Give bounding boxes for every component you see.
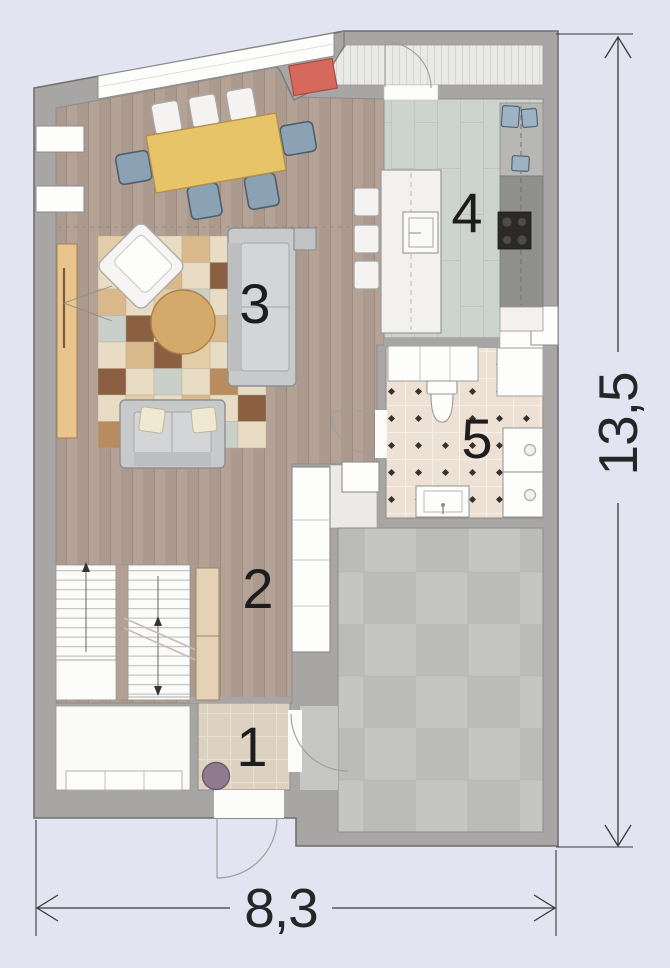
small-appliance — [512, 156, 530, 172]
hall-cabinet — [342, 462, 379, 492]
small-appliance — [521, 108, 538, 127]
dining-chair-blue — [279, 121, 317, 156]
cooktop — [498, 212, 531, 249]
garage-door-zone — [300, 706, 338, 790]
rug-patch — [126, 342, 154, 369]
loveseat — [120, 400, 225, 468]
rug-patch — [182, 369, 210, 396]
rug-patch — [98, 342, 126, 369]
left-window-2 — [36, 186, 84, 212]
sideboard — [57, 244, 77, 438]
rug-patch — [126, 369, 154, 396]
rug-patch — [98, 316, 126, 343]
pouf — [203, 763, 230, 790]
room-label-bathroom: 5 — [461, 407, 492, 470]
garage-door-opening — [288, 710, 302, 772]
dining-chair-blue — [244, 172, 280, 210]
bench — [66, 771, 182, 790]
stair-stringer — [116, 565, 128, 700]
rug-patch — [98, 369, 126, 396]
coffee-table — [151, 290, 215, 354]
dimension-height-label: 13,5 — [587, 372, 649, 475]
terrace-door-opening — [384, 85, 438, 100]
bar-stool — [354, 225, 379, 253]
rug-patch — [238, 395, 266, 422]
floor-plan-page: 1 2 3 4 5 8,3 13,5 — [0, 0, 670, 968]
rug-patch — [238, 422, 266, 449]
bar-stool — [354, 188, 379, 216]
tall-cabinet — [196, 568, 219, 700]
kitchen-counter — [498, 103, 543, 331]
rug-patch — [154, 369, 182, 396]
washer-stack — [503, 428, 543, 517]
pillow — [191, 407, 217, 433]
rug-patch — [182, 263, 210, 290]
left-window-1 — [36, 126, 84, 152]
bath-sink — [416, 486, 469, 517]
bathroom-door-opening — [375, 410, 387, 458]
floor-plan-svg: 1 2 3 4 5 8,3 13,5 — [0, 0, 670, 968]
room-label-hallway: 2 — [242, 557, 273, 620]
closet — [292, 467, 330, 652]
garage-floor — [338, 528, 543, 832]
bar-stool — [354, 261, 379, 289]
kitchen-island — [381, 170, 441, 333]
rug-patch — [182, 236, 210, 263]
pillow — [138, 406, 165, 433]
side-table — [294, 228, 316, 250]
dining-chair-blue — [187, 182, 223, 220]
dimension-width-label: 8,3 — [244, 877, 317, 939]
front-door-opening — [214, 790, 284, 818]
rug-patch — [126, 316, 154, 343]
small-appliance — [501, 105, 519, 127]
room-label-living: 3 — [239, 272, 270, 335]
room-label-entry: 1 — [236, 715, 267, 778]
room-label-kitchen: 4 — [451, 181, 482, 244]
dining-chair-blue — [115, 150, 153, 185]
